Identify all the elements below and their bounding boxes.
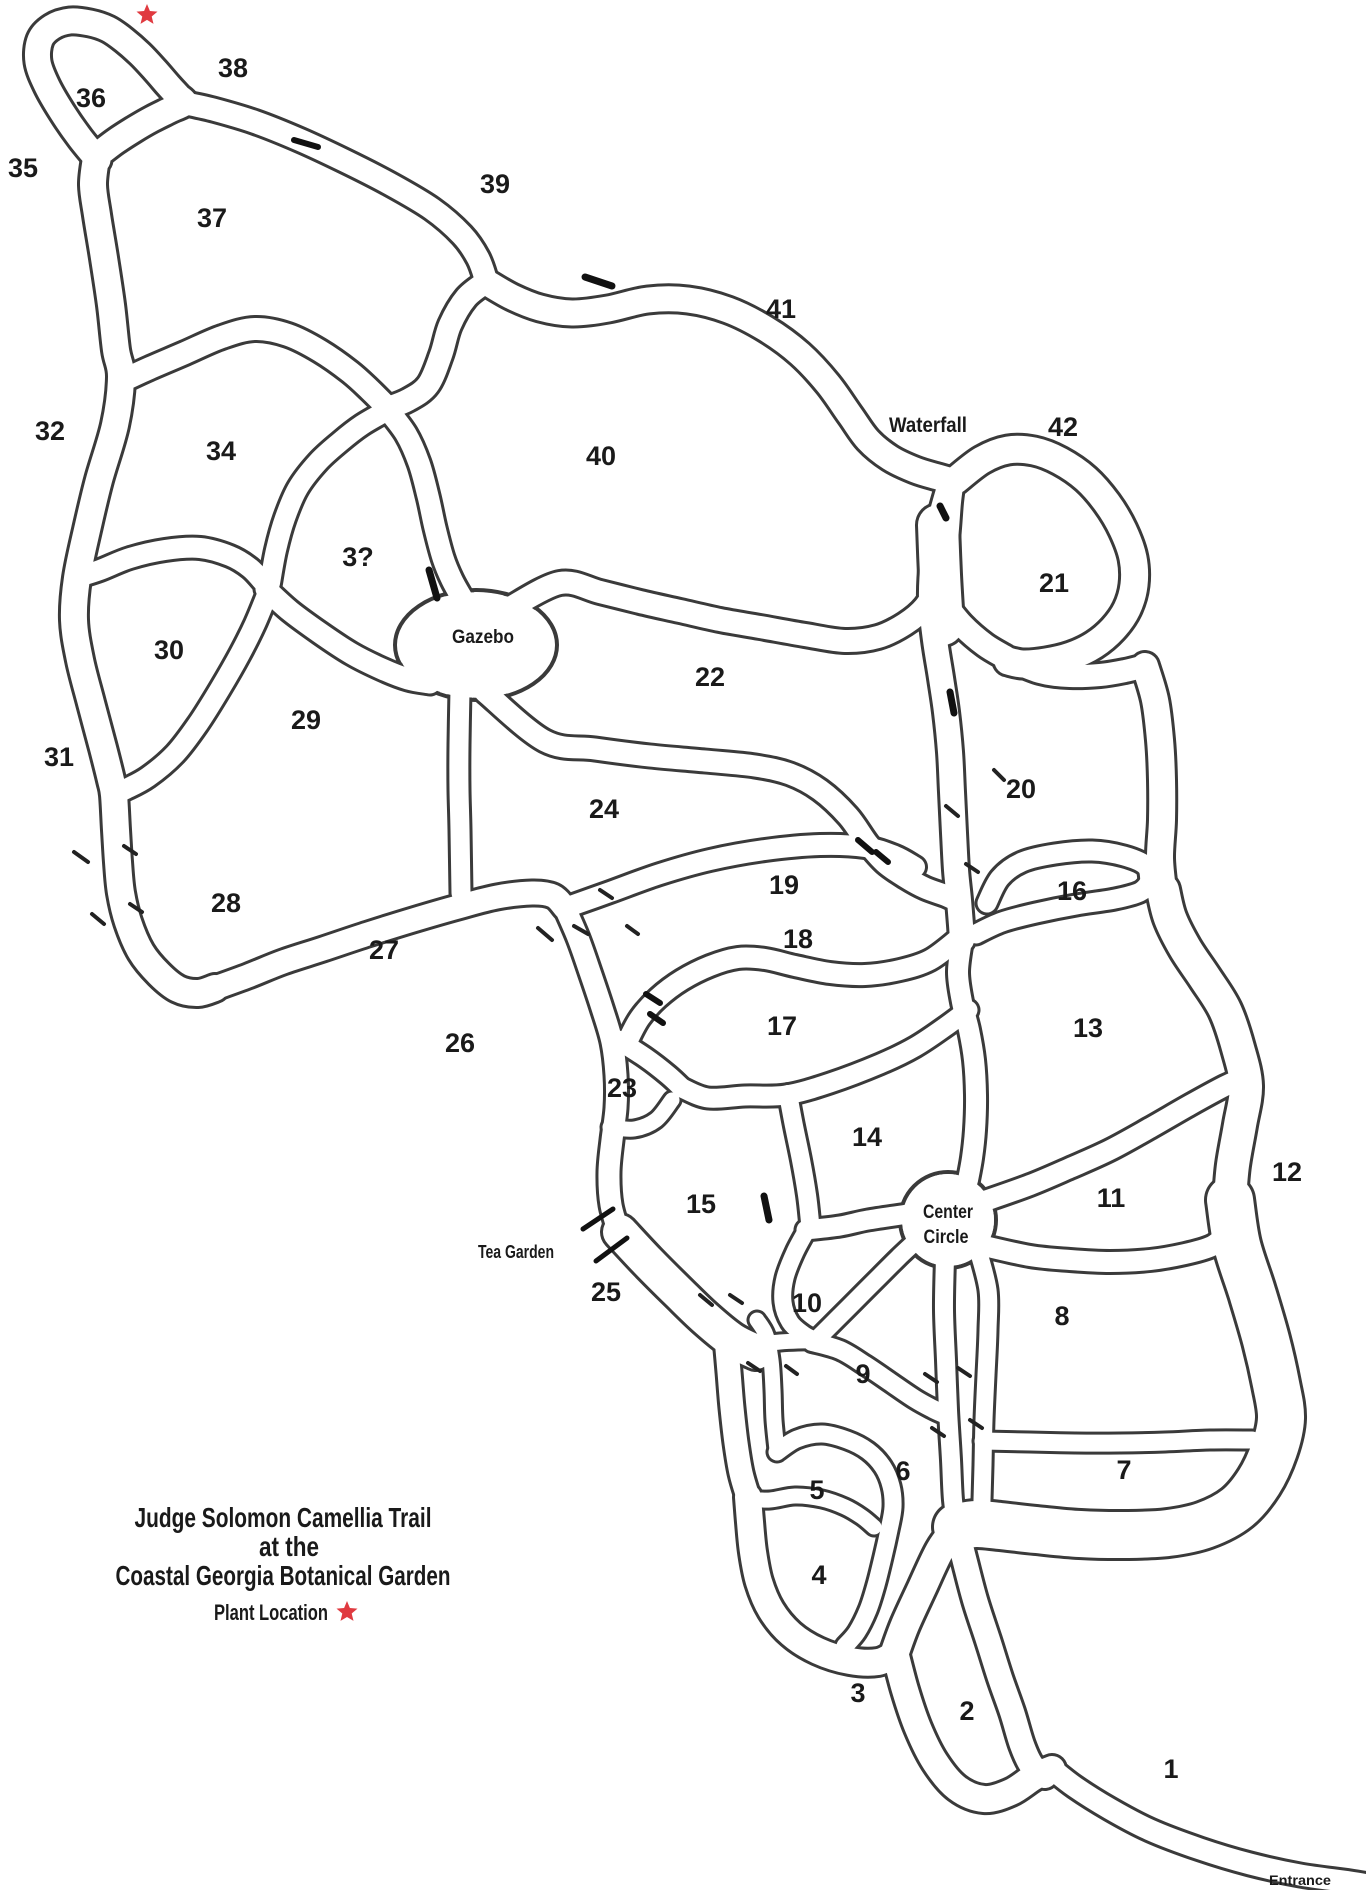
svg-text:11: 11 xyxy=(1097,1183,1126,1213)
svg-text:31: 31 xyxy=(44,742,74,772)
svg-text:12: 12 xyxy=(1272,1157,1302,1187)
svg-text:2: 2 xyxy=(959,1696,974,1726)
svg-text:40: 40 xyxy=(586,441,616,471)
svg-text:30: 30 xyxy=(154,635,184,665)
svg-text:18: 18 xyxy=(783,924,813,954)
svg-text:22: 22 xyxy=(695,662,725,692)
svg-text:24: 24 xyxy=(589,794,619,824)
svg-text:13: 13 xyxy=(1073,1013,1103,1043)
svg-text:23: 23 xyxy=(607,1073,637,1103)
svg-text:5: 5 xyxy=(809,1475,824,1505)
svg-text:15: 15 xyxy=(686,1189,716,1219)
svg-text:16: 16 xyxy=(1057,876,1087,906)
svg-text:Plant Location: Plant Location xyxy=(214,1600,328,1625)
svg-text:34: 34 xyxy=(206,436,236,466)
svg-text:Waterfall: Waterfall xyxy=(889,414,967,437)
svg-text:Judge Solomon Camellia Trail: Judge Solomon Camellia Trail xyxy=(135,1502,432,1533)
svg-text:6: 6 xyxy=(895,1456,910,1486)
svg-text:10: 10 xyxy=(792,1288,822,1318)
svg-text:8: 8 xyxy=(1054,1301,1069,1331)
svg-text:25: 25 xyxy=(591,1277,621,1307)
svg-text:3?: 3? xyxy=(342,542,374,572)
svg-text:39: 39 xyxy=(480,169,510,199)
svg-text:17: 17 xyxy=(767,1011,797,1041)
svg-text:Tea Garden: Tea Garden xyxy=(478,1242,554,1262)
svg-text:42: 42 xyxy=(1048,412,1078,442)
svg-text:19: 19 xyxy=(769,870,799,900)
svg-text:7: 7 xyxy=(1116,1455,1131,1485)
svg-text:38: 38 xyxy=(218,53,248,83)
svg-text:29: 29 xyxy=(291,705,321,735)
svg-text:28: 28 xyxy=(211,888,241,918)
svg-text:9: 9 xyxy=(855,1359,870,1389)
svg-text:26: 26 xyxy=(445,1028,475,1058)
svg-text:Coastal Georgia Botanical Gard: Coastal Georgia Botanical Garden xyxy=(116,1560,451,1591)
svg-text:Circle: Circle xyxy=(924,1227,969,1248)
svg-text:Center: Center xyxy=(923,1202,973,1223)
svg-text:32: 32 xyxy=(35,416,65,446)
svg-text:Entrance: Entrance xyxy=(1269,1872,1331,1888)
svg-text:at the: at the xyxy=(259,1531,319,1562)
svg-text:35: 35 xyxy=(8,153,38,183)
svg-text:14: 14 xyxy=(852,1122,882,1152)
svg-text:4: 4 xyxy=(811,1560,826,1590)
svg-text:41: 41 xyxy=(766,294,796,324)
svg-text:Gazebo: Gazebo xyxy=(452,627,514,648)
svg-text:21: 21 xyxy=(1039,568,1069,598)
svg-text:1: 1 xyxy=(1163,1754,1178,1784)
svg-text:36: 36 xyxy=(76,83,106,113)
svg-text:27: 27 xyxy=(369,935,399,965)
svg-text:37: 37 xyxy=(197,203,227,233)
svg-text:20: 20 xyxy=(1006,774,1036,804)
svg-text:3: 3 xyxy=(850,1678,865,1708)
